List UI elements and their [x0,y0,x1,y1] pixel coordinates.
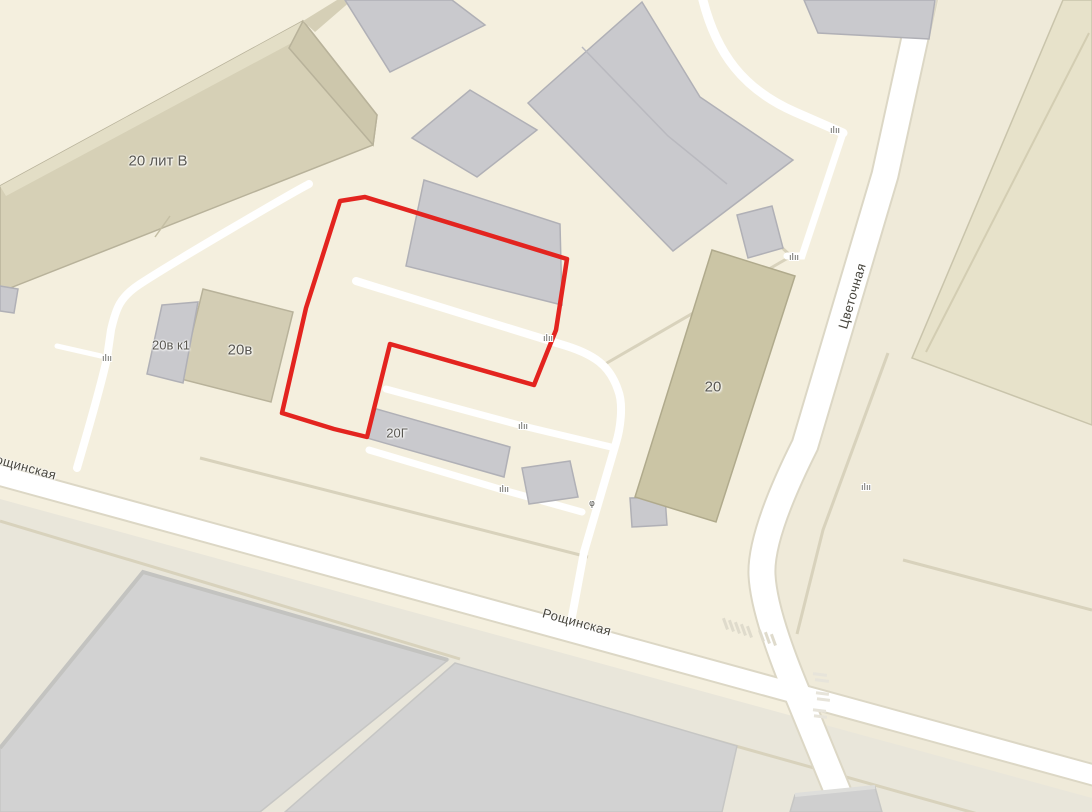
building-gray-right-of-20g[interactable] [522,461,578,504]
gate-icon: ılıı [830,126,840,136]
gate-icon: ılıı [499,485,509,495]
map-canvas[interactable]: ılıı ılıı ılıı ılıı ılıı ılıı ılıı φ 20 … [0,0,1092,812]
gate-icon: ılıı [543,334,553,344]
gate-icon: ılıı [518,422,528,432]
gate-icon: ılıı [102,354,112,364]
barrier-icon: φ [589,499,595,509]
gate-icon: ılıı [789,253,799,263]
gate-icon: ılıı [861,483,871,493]
building-gray-left-edge[interactable] [0,286,18,313]
building-gray-topright-small[interactable] [804,0,935,39]
